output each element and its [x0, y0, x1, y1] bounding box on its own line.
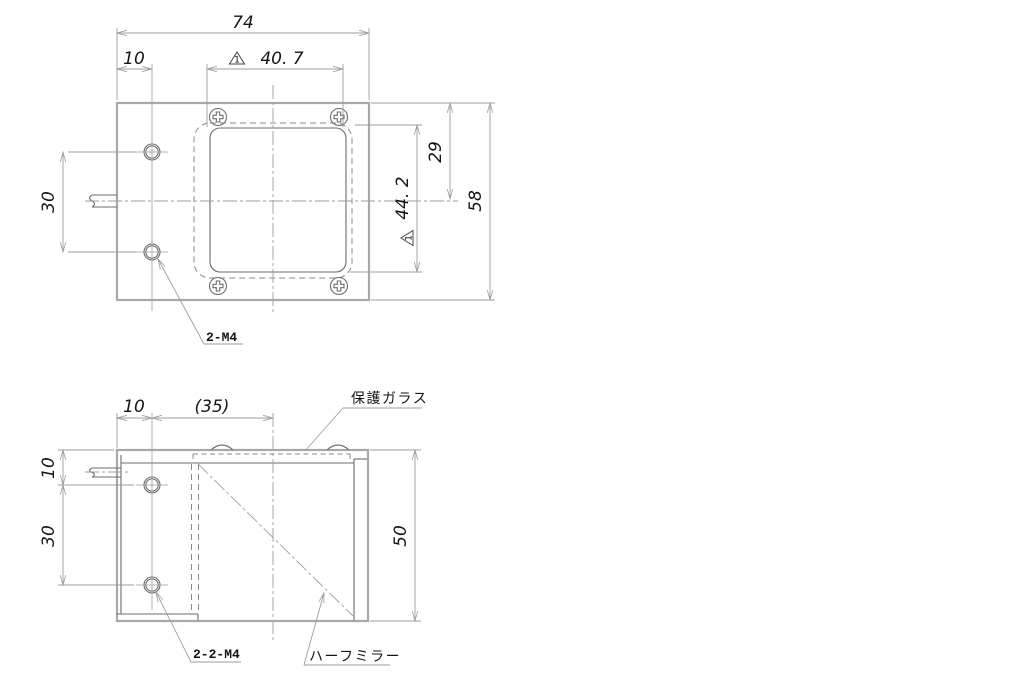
dim-text-29: 29	[426, 141, 446, 163]
dim-text-35: (35)	[195, 397, 230, 417]
revision-number: 1	[405, 235, 415, 241]
label-protective-glass: 保護ガラス	[351, 391, 428, 407]
cable-tab	[85, 468, 128, 477]
dim-text-58: 58	[466, 190, 486, 212]
dim-text-44-2: 44. 2	[393, 176, 413, 219]
dim-text-74: 74	[232, 13, 254, 33]
dim-hole-pitch: 30	[39, 485, 134, 585]
top-view: 74 10 1 40. 7 29 44. 2	[39, 13, 495, 345]
dim-text-10-left: 10	[39, 457, 59, 479]
screw-top-right-icon	[331, 109, 348, 126]
dim-top-to-center: 29	[426, 103, 450, 199]
dim-text-40-7: 40. 7	[260, 49, 303, 69]
screw-bottom-right-icon	[331, 278, 348, 295]
dim-text-30: 30	[39, 525, 59, 547]
dim-window-height: 44. 2 1	[350, 125, 422, 272]
screw-top-left-icon	[210, 109, 227, 126]
top-view-plate-outline	[117, 103, 369, 300]
side-view: 10 (35) 10 30 50	[39, 391, 428, 665]
screw-bottom-left-icon	[210, 278, 227, 295]
break-symbol	[90, 468, 95, 477]
window-opening-outline	[210, 128, 346, 272]
protective-glass-line	[193, 454, 350, 460]
leader-half-mirror: ハーフミラー	[304, 593, 401, 665]
leader-protective-glass: 保護ガラス	[305, 391, 428, 451]
dim-overall-width: 74	[117, 13, 369, 100]
cad-drawing: 74 10 1 40. 7 29 44. 2	[0, 0, 1024, 683]
dim-hole-pitch: 30	[39, 152, 136, 252]
drawing-canvas: 74 10 1 40. 7 29 44. 2	[0, 0, 1024, 683]
half-mirror-line	[198, 464, 353, 616]
leader-2-2-m4: 2-2-M4	[156, 592, 241, 662]
dim-text-10: 10	[123, 49, 145, 69]
revision-number: 1	[234, 56, 240, 66]
dim-center-offset: (35)	[152, 397, 273, 418]
revision-triangle-icon: 1	[401, 231, 415, 246]
dim-hole-offset-x: 10	[117, 397, 152, 448]
label-2-2-m4: 2-2-M4	[193, 647, 240, 662]
dim-text-30: 30	[39, 191, 59, 213]
dim-text-50: 50	[391, 525, 411, 547]
dim-text-10-top: 10	[123, 397, 145, 417]
dim-overall-height: 58	[466, 103, 490, 300]
side-view-body-outline	[117, 450, 368, 621]
label-half-mirror: ハーフミラー	[309, 649, 401, 665]
dim-overall-height: 50	[370, 450, 421, 621]
dim-hole-offset-x: 10	[117, 49, 152, 69]
label-2-m4: 2-M4	[206, 330, 237, 345]
dim-window-width: 1 40. 7	[207, 49, 343, 127]
